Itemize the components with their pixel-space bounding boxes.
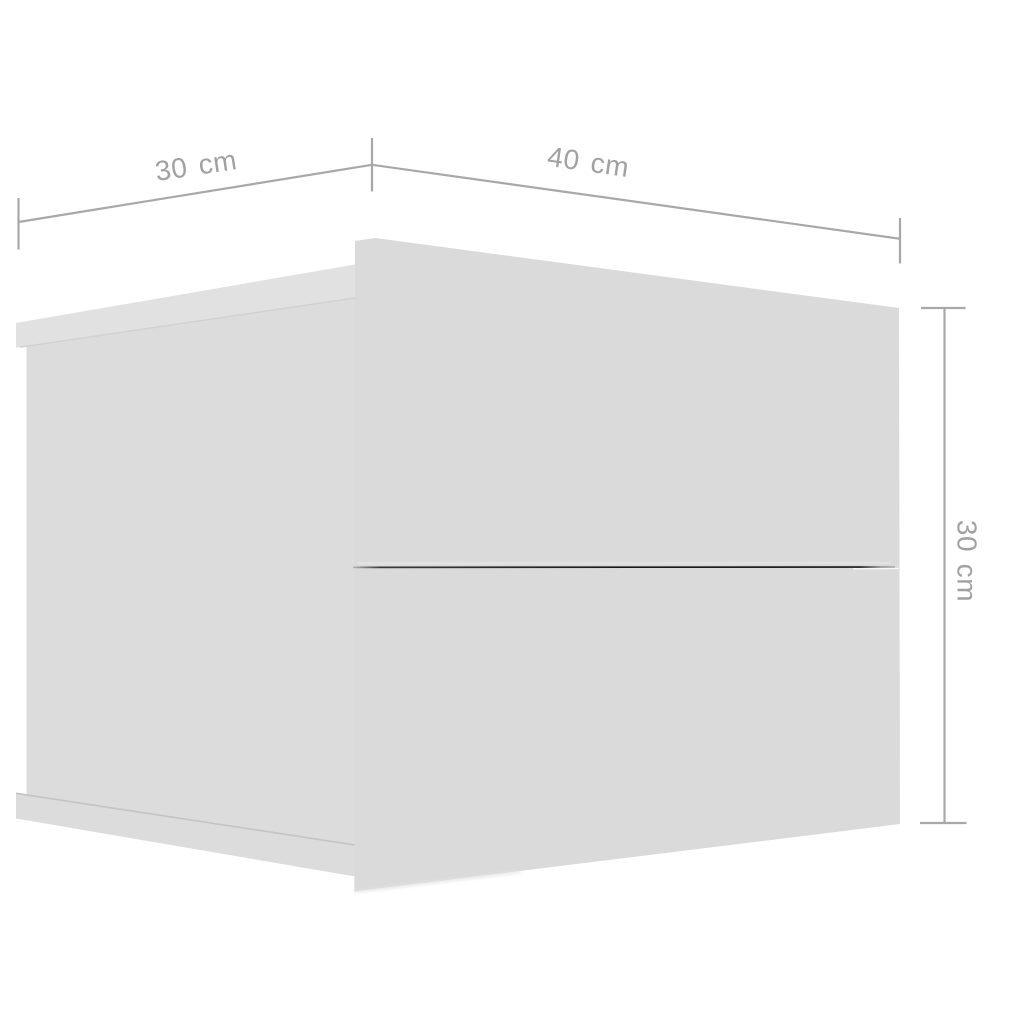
svg-text:30 cm: 30 cm	[952, 520, 983, 602]
